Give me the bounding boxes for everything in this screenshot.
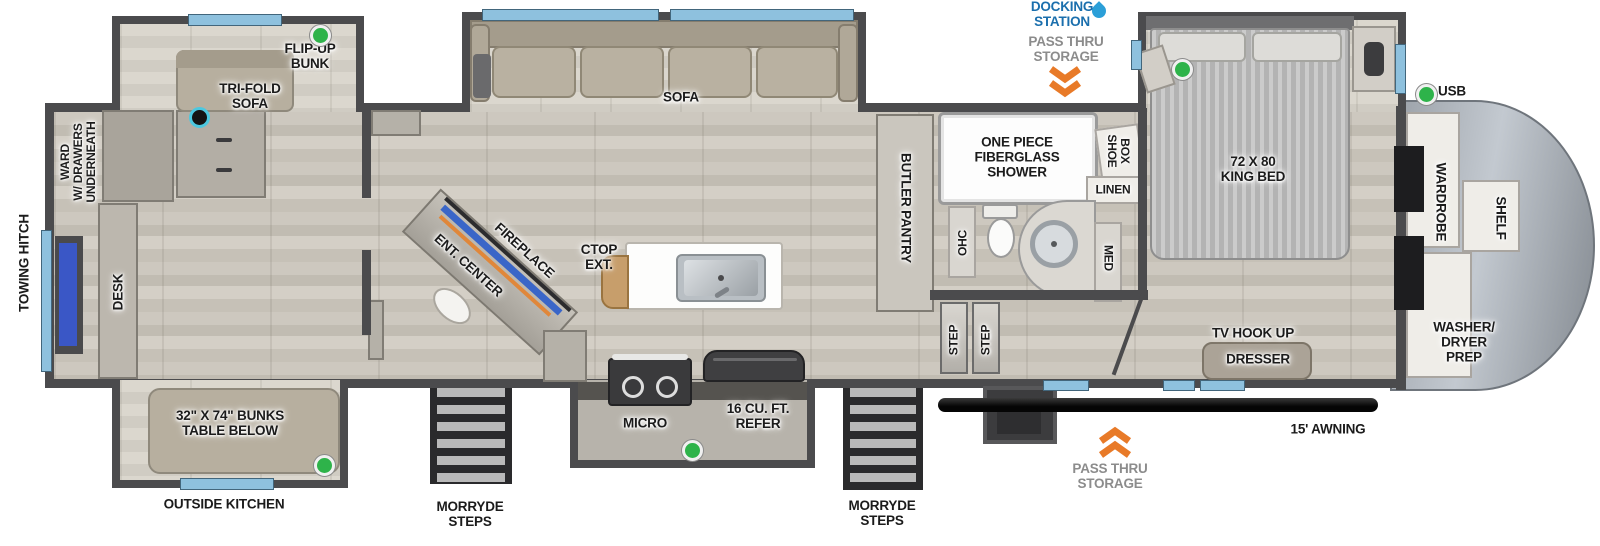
bunks-label: 32" X 74" BUNKS TABLE BELOW (176, 409, 284, 439)
nightstand-lamp (1364, 42, 1384, 76)
awning-bar (938, 398, 1378, 412)
vanity-drain (1051, 241, 1057, 247)
morryde-steps-1 (430, 388, 512, 484)
burner (622, 376, 644, 398)
ward-cabinet (102, 110, 174, 202)
sofa-cushion (580, 46, 664, 98)
end-table (473, 54, 491, 98)
entry-platform (983, 386, 1057, 444)
drawer-handle (216, 138, 232, 142)
toilet-bowl (987, 218, 1015, 258)
sofa-label: SOFA (663, 91, 699, 106)
shoe-box-label: SHOE BOX (1105, 134, 1131, 167)
light-dot-bunks (314, 455, 335, 476)
window-bunk-slide (188, 14, 282, 26)
dresser-label: DRESSER (1226, 353, 1290, 368)
wall-bath-bedroom (1138, 108, 1147, 293)
stove (608, 358, 692, 406)
refer-label: 16 CU. FT. REFER (727, 402, 790, 432)
window-bed-slide-left (1131, 40, 1142, 70)
outside-kitchen-label: OUTSIDE KITCHEN (164, 498, 285, 513)
pillow (1158, 32, 1246, 62)
micro-label: MICRO (623, 417, 667, 432)
refer-door-line (713, 358, 797, 361)
flip-up-bunk-label: FLIP-UP BUNK (284, 42, 335, 72)
rear-shelf-panel (1462, 180, 1520, 252)
tri-fold-sofa-label: TRI-FOLD SOFA (219, 82, 280, 112)
drawer-bank (176, 110, 266, 198)
tri-fold-sofa-back (176, 50, 294, 68)
chevron-up-icon (1098, 426, 1132, 460)
refrigerator (703, 350, 805, 382)
sink-drain (718, 275, 724, 281)
toilet-tank (982, 204, 1018, 219)
ohc-label: OHC (956, 230, 969, 256)
shoe-box-label-line1: SHOE (1105, 134, 1118, 167)
morryde-steps-label-2: MORRYDE STEPS (848, 499, 915, 529)
washer-dryer-label: WASHER/ DRYER PREP (1433, 321, 1495, 366)
nightstand-right (1352, 26, 1396, 92)
ctop-ext-label: CTOP EXT. (581, 243, 617, 273)
docking-station-label: DOCKING STATION (1031, 0, 1093, 30)
step-label-2: STEP (979, 325, 992, 356)
med-label: MED (1101, 245, 1114, 271)
step-label-1: STEP (947, 325, 960, 356)
sofa-cushion (756, 46, 838, 98)
corner-cabinet (543, 330, 587, 382)
desk-tv-screen (59, 243, 77, 346)
tv-hook-up-label: TV HOOK UP (1212, 327, 1294, 342)
burner (656, 376, 678, 398)
pillow (1252, 32, 1342, 62)
speaker-dot-tri-fold (189, 107, 210, 128)
light-dot-usb (1416, 84, 1437, 105)
chevron-down-icon (1048, 66, 1082, 98)
pass-thru-label-top: PASS THRU STORAGE (1028, 35, 1103, 65)
shoe-box-label-line2: BOX (1118, 134, 1131, 167)
window-bottom-1 (1043, 380, 1089, 391)
window-bottom-3 (1200, 380, 1245, 391)
window-front-wall (41, 230, 52, 372)
wall-bath-bottom (930, 290, 1148, 300)
stove-back-edge (612, 354, 688, 360)
window-bunks-slide (180, 478, 274, 490)
light-dot-bed-slide (1172, 59, 1193, 80)
king-bed-label: 72 X 80 KING BED (1221, 155, 1285, 185)
light-dot-kitchen (682, 440, 703, 461)
drawer-handle (216, 168, 232, 172)
sofa-back (470, 20, 858, 48)
floorplan-stage: TOWING HITCH WARD W/ DRAWERS UNDERNEATH … (0, 0, 1600, 546)
pass-thru-label-bottom: PASS THRU STORAGE (1072, 462, 1147, 492)
window-sofa-slide-2 (670, 9, 854, 21)
sofa-armrest-right (838, 24, 858, 102)
vanity-sink (1030, 220, 1078, 268)
usb-label: USB (1438, 85, 1466, 100)
light-dot-flip-up-bunk (310, 25, 331, 46)
shelf-label: SHELF (1493, 196, 1508, 239)
wardrobe-opening (1394, 236, 1424, 310)
wardrobe-label: WARDROBE (1433, 163, 1448, 242)
shower-label: ONE PIECE FIBERGLASS SHOWER (974, 136, 1059, 181)
window-bottom-2 (1163, 380, 1195, 391)
window-bed-slide-right (1395, 44, 1406, 94)
butler-pantry-label: BUTLER PANTRY (898, 153, 913, 263)
ward-label: WARD W/ DRAWERS UNDERNEATH (59, 121, 99, 202)
wardrobe-opening (1394, 146, 1424, 212)
morryde-steps-label-1: MORRYDE STEPS (436, 500, 503, 530)
wall-bunkroom-divider-upper (362, 108, 371, 198)
towing-hitch-label: TOWING HITCH (18, 214, 33, 312)
awning-label: 15' AWNING (1291, 423, 1366, 438)
desk-label: DESK (112, 274, 127, 311)
divider-cabinet (371, 110, 421, 136)
window-sofa-slide-1 (482, 9, 659, 21)
morryde-steps-2 (843, 388, 923, 490)
sofa-cushion (492, 46, 576, 98)
linen-label: LINEN (1095, 183, 1130, 196)
wall-bunkroom-divider-lower (362, 250, 371, 335)
